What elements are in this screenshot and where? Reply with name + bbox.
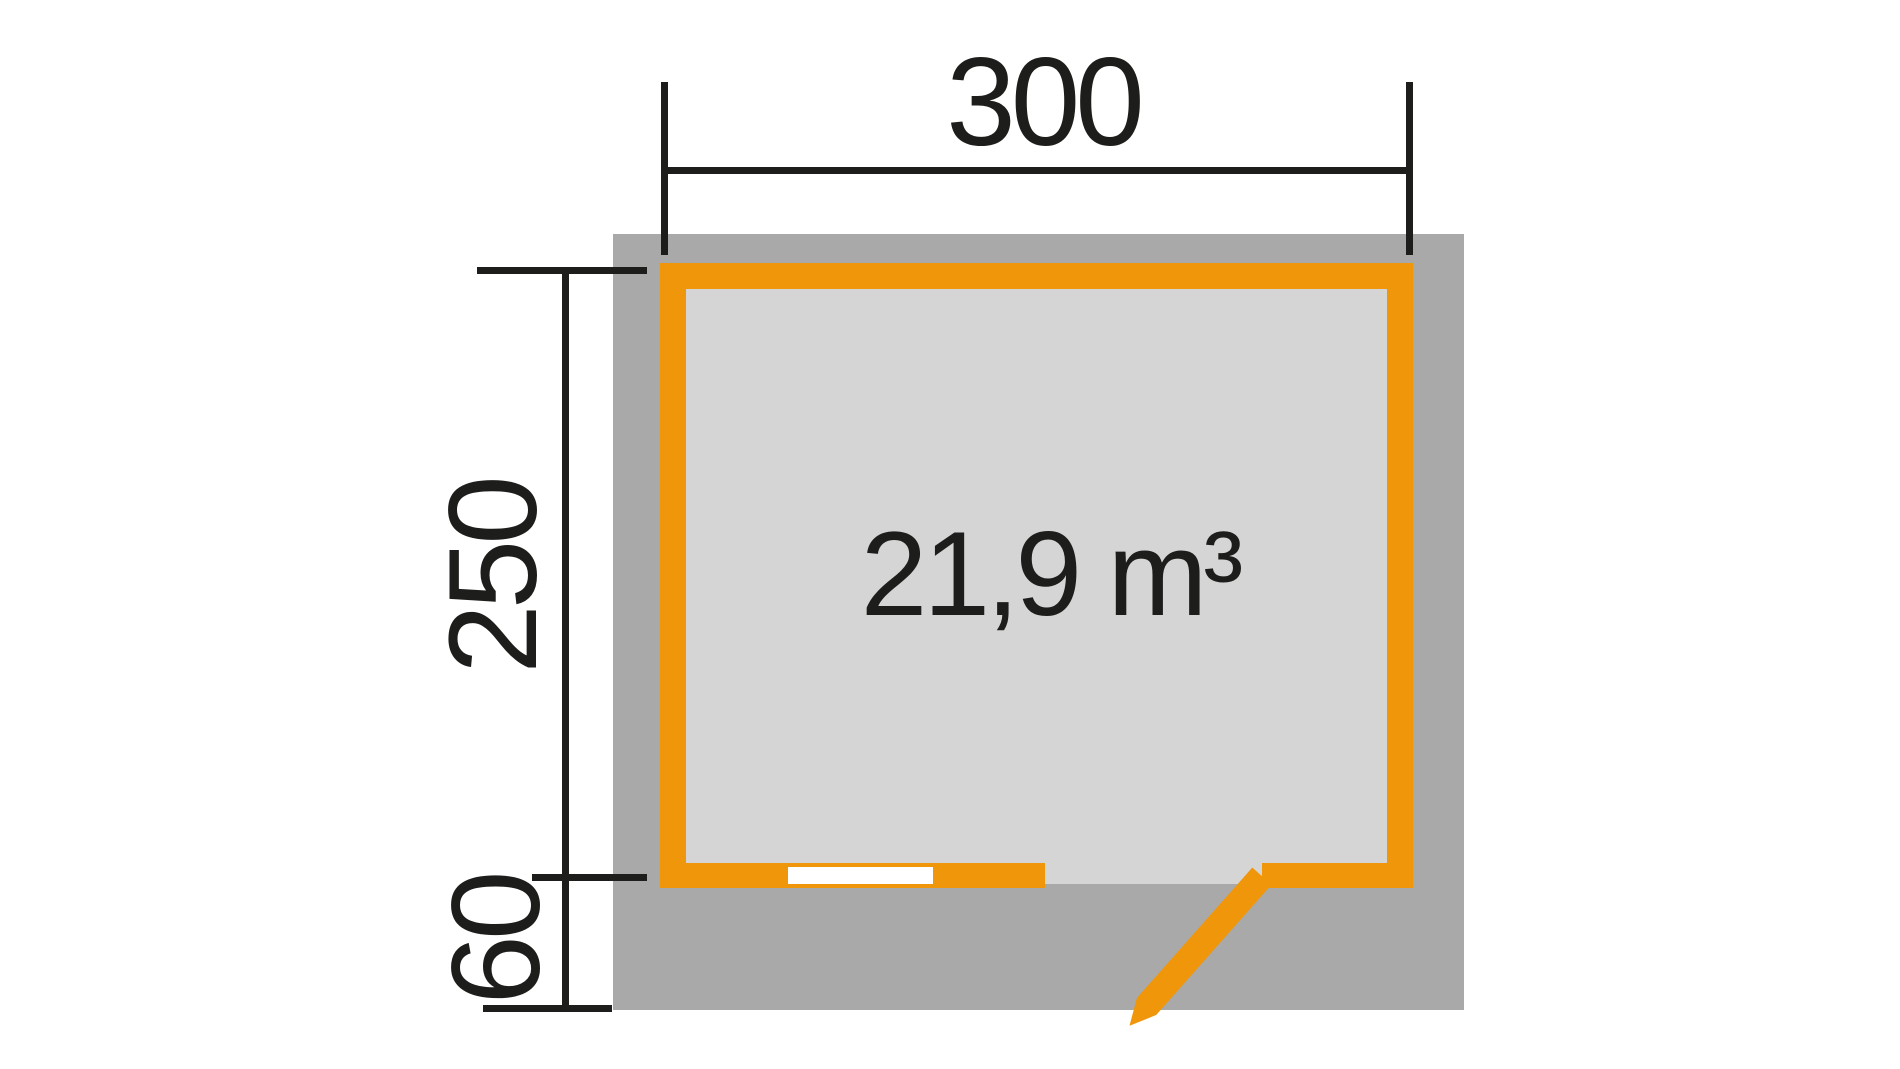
wall-top (660, 263, 1413, 289)
wall-left (660, 263, 686, 888)
dim-width-label: 300 (893, 38, 1193, 168)
wall-bottom-right (1262, 863, 1413, 888)
door-opening-floor (1045, 863, 1262, 884)
window-opening (788, 867, 933, 884)
floor-plan-canvas: 300 250 60 21,9 m³ (0, 0, 1900, 1069)
dim-width-tick-right (1406, 82, 1413, 255)
dim-width-tick-left (661, 82, 668, 255)
dim-overhang-label: 60 (432, 790, 562, 1069)
dim-depth-tick-top (477, 267, 647, 274)
volume-label: 21,9 m³ (700, 509, 1400, 639)
dim-depth-label: 250 (429, 427, 559, 727)
